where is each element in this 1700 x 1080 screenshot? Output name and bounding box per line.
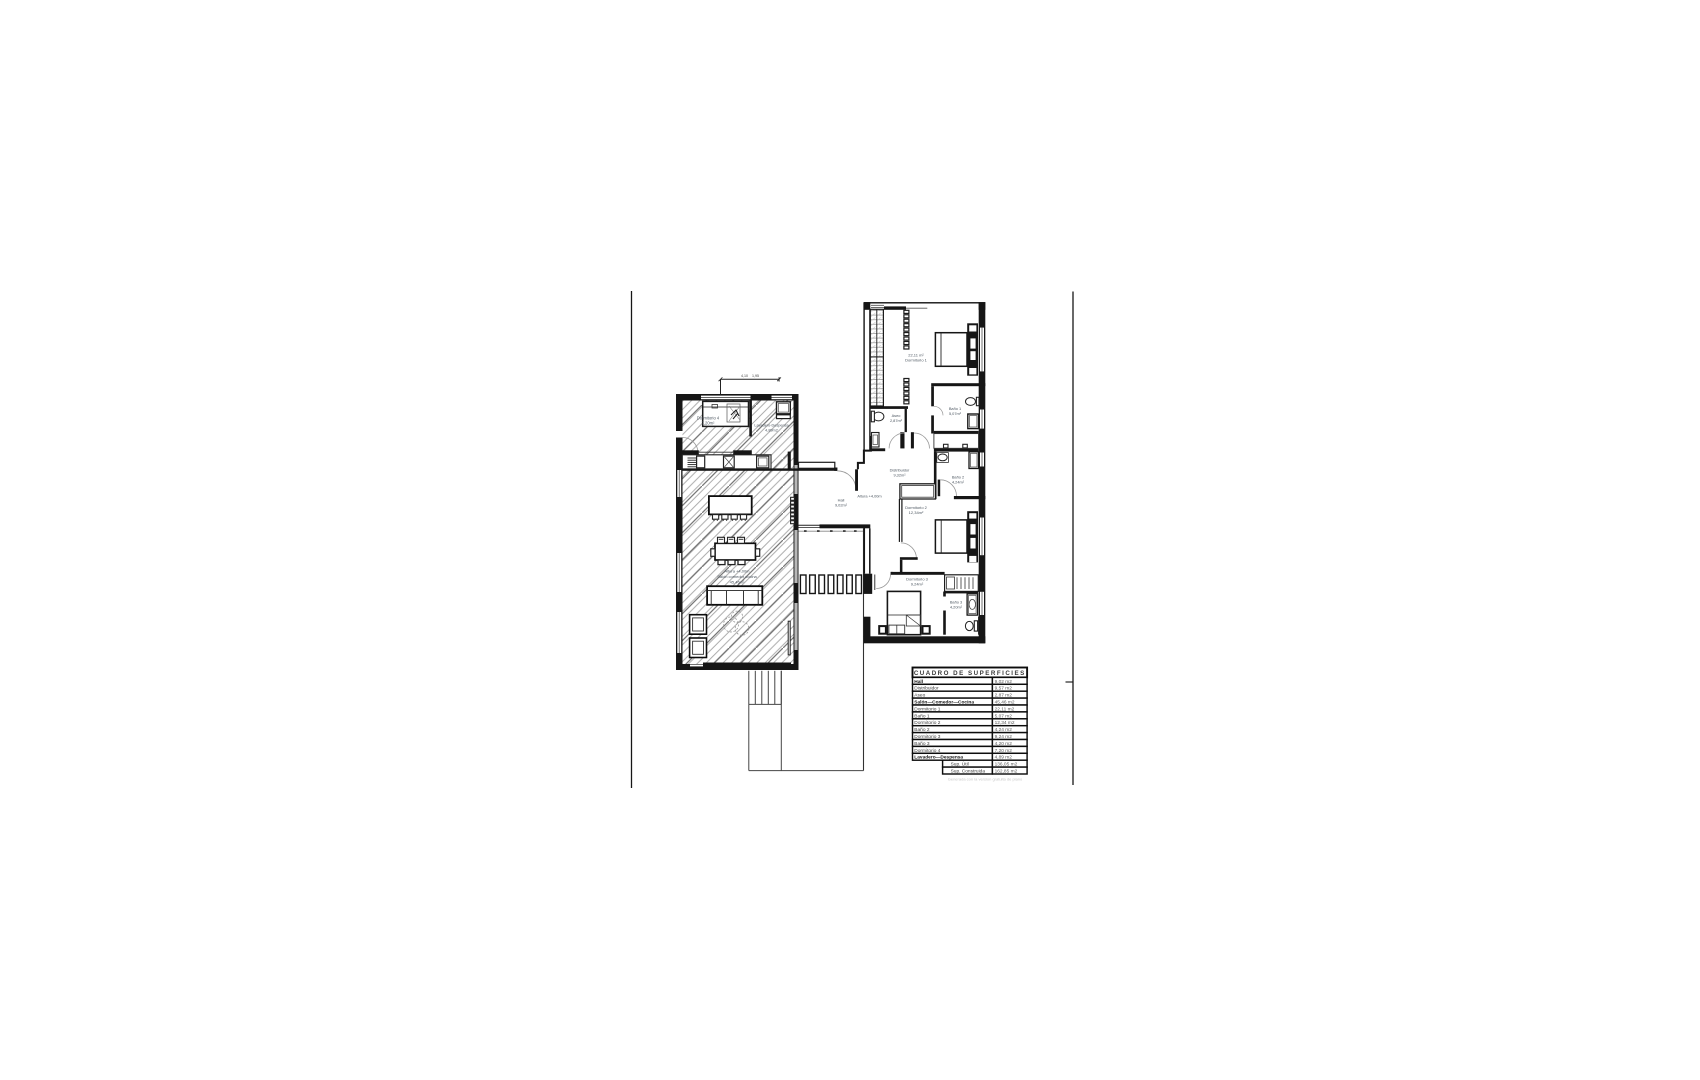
svg-text:45,46m²: 45,46m²: [730, 580, 745, 585]
svg-text:5,07m²: 5,07m²: [949, 411, 962, 416]
svg-text:4,89m2: 4,89m2: [765, 429, 778, 433]
svg-text:4,20m²: 4,20m²: [950, 605, 963, 610]
svg-text:9,02m²: 9,02m²: [835, 503, 848, 508]
svg-text:9,32m²: 9,32m²: [893, 473, 906, 478]
svg-text:Generada con la version gratui: Generada con la version gratuita de plan…: [948, 777, 1023, 782]
svg-text:Sup. Construida: Sup. Construida: [951, 768, 986, 774]
svg-text:Altura +4,00m: Altura +4,00m: [724, 569, 750, 574]
svg-text:12,34m²: 12,34m²: [909, 510, 924, 515]
svg-text:7,20m²: 7,20m²: [702, 421, 715, 426]
svg-text:Altura +4,00m: Altura +4,00m: [857, 494, 881, 499]
svg-text:Salón comedor cocina: Salón comedor cocina: [717, 574, 757, 579]
svg-text:9,24m²: 9,24m²: [911, 582, 924, 587]
svg-text:4,24m²: 4,24m²: [952, 480, 965, 485]
svg-text:Dormitorio 1: Dormitorio 1: [905, 358, 928, 363]
svg-text:Lavadero-Despensa: Lavadero-Despensa: [754, 424, 789, 428]
svg-text:162,85 m2: 162,85 m2: [995, 768, 1018, 774]
svg-text:CUADRO DE SUPERFICIES: CUADRO DE SUPERFICIES: [914, 670, 1026, 677]
svg-text:4,10 1,95: 4,10 1,95: [741, 374, 759, 378]
svg-text:2,87m²: 2,87m²: [890, 418, 903, 423]
